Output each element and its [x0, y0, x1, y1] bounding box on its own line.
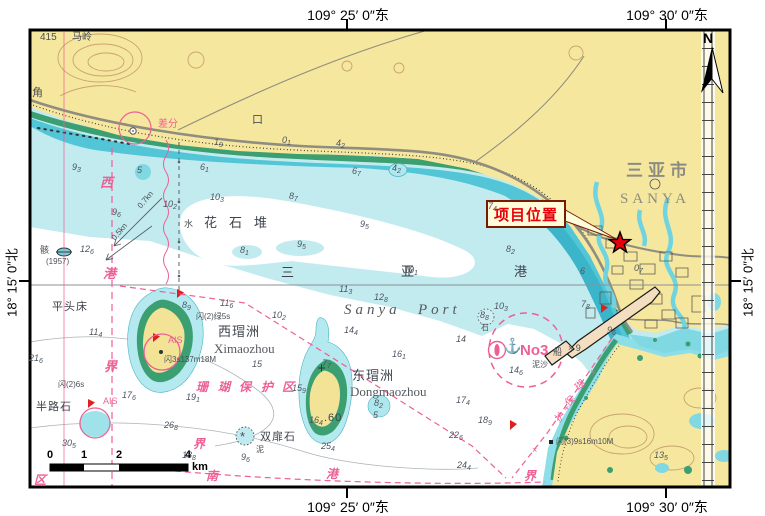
depth-sounding: 188 — [182, 451, 196, 462]
depth-sounding: 82 — [506, 245, 515, 256]
map-label: 石 — [481, 324, 489, 332]
map-label: AIS — [103, 397, 118, 406]
map-label: 西 — [100, 176, 113, 189]
map-label: 船 — [553, 348, 562, 357]
border-ruler — [701, 30, 715, 487]
map-label: .60 — [324, 413, 342, 424]
depth-sounding: 102 — [272, 311, 286, 322]
map-label: SANYA — [620, 192, 690, 207]
depth-sounding: 144 — [344, 326, 358, 337]
map-label: 西瑁洲 — [218, 325, 260, 338]
depth-sounding: 81 — [240, 246, 249, 257]
depth-sounding: 87 — [289, 192, 298, 203]
depth-sounding: 42 — [336, 139, 345, 150]
map-label: 界 — [104, 360, 117, 373]
depth-sounding: 88 — [480, 311, 489, 322]
depth-sounding: 14 — [456, 335, 466, 344]
lon-label-top-left: 109° 25′ 0″东 — [307, 5, 389, 25]
depth-sounding: 96 — [241, 453, 250, 464]
depth-sounding: 95 — [297, 240, 306, 251]
map-label: * — [240, 430, 245, 443]
chart-graphics — [0, 0, 765, 516]
depth-sounding: 116 — [220, 299, 233, 310]
depth-sounding: 5 — [137, 166, 142, 175]
depth-sounding: 216 — [29, 354, 43, 365]
map-label: 保 — [239, 381, 251, 393]
depth-sounding: 82 — [374, 399, 383, 410]
map-label: 区 — [34, 474, 46, 486]
depth-sounding: 15 — [252, 360, 262, 369]
map-label: 闪(2)6s — [58, 381, 84, 389]
map-label: 三 — [281, 266, 295, 279]
map-label: 半路石 — [36, 402, 72, 413]
depth-sounding: 244 — [457, 461, 471, 472]
map-label: 闪3s137m18M — [164, 356, 216, 364]
depth-sounding: 114 — [89, 328, 102, 339]
map-label: N — [703, 31, 713, 45]
scale-tick-2: 2 — [116, 449, 122, 461]
depth-sounding: 42 — [392, 164, 401, 175]
depth-sounding: 226 — [449, 431, 463, 442]
map-label: 珊 — [196, 381, 208, 393]
depth-sounding: 07 — [634, 264, 643, 275]
depth-sounding: 74 — [488, 202, 497, 213]
map-label: 闪(3)9s16m10M — [556, 438, 613, 446]
map-label: 南 — [206, 470, 218, 482]
depth-sounding: 19 — [214, 138, 223, 149]
project-location-callout: 项目位置 — [486, 200, 566, 228]
lon-label-bottom-left: 109° 25′ 0″东 — [307, 497, 389, 516]
depth-sounding: 103 — [494, 302, 508, 313]
depth-sounding: 5 — [373, 411, 378, 420]
depth-sounding: 126 — [80, 245, 94, 256]
map-label: Sanya — [344, 303, 401, 318]
map-label: 415 — [40, 33, 57, 43]
map-label: 护 — [261, 381, 273, 393]
map-label: AIS — [168, 336, 183, 345]
map-label: 泥沙 — [532, 361, 548, 369]
map-label: 港 — [103, 267, 116, 280]
depth-sounding: 102 — [163, 200, 177, 211]
map-label: × — [564, 404, 569, 413]
depth-sounding: 95 — [360, 220, 369, 231]
depth-sounding: 61 — [200, 163, 209, 174]
lon-label-bottom-right: 109° 30′ 0″东 — [626, 497, 708, 516]
scale-tick-1: 1 — [81, 449, 87, 461]
depth-sounding: 6 — [580, 267, 585, 276]
lon-label-top-right: 109° 30′ 0″东 — [626, 5, 708, 25]
map-label: Ximaozhou — [214, 342, 275, 355]
map-label: 三亚市 — [626, 162, 692, 179]
depth-sounding: 305 — [62, 439, 76, 450]
depth-sounding: 101 — [404, 266, 418, 277]
map-label: 闪(2)绿5s — [196, 313, 230, 321]
map-label: 花石堆 — [204, 216, 279, 229]
depth-sounding: 89 — [182, 301, 191, 312]
map-label: 泥 — [256, 446, 264, 454]
map-label: 骸 — [40, 246, 49, 255]
depth-sounding: 01 — [282, 136, 291, 147]
depth-sounding: 93 — [72, 163, 81, 174]
depth-sounding: 113 — [339, 285, 352, 296]
map-label: 界 — [524, 470, 536, 482]
depth-sounding: 67 — [352, 167, 361, 178]
depth-sounding: 254 — [321, 442, 335, 453]
depth-sounding: 135 — [654, 451, 668, 462]
map-label: × — [590, 368, 595, 377]
map-label: 港 — [514, 265, 528, 278]
scale-bar — [50, 464, 188, 471]
depth-sounding: 96 — [112, 208, 121, 219]
depth-sounding: 176 — [122, 391, 136, 402]
depth-sounding: 189 — [478, 416, 492, 427]
map-label: 角 — [32, 88, 43, 99]
depth-sounding: 146 — [509, 366, 523, 377]
map-label: ⚓ — [503, 339, 522, 354]
depth-sounding: 164 — [309, 416, 323, 427]
scale-tick-0: 0 — [47, 449, 53, 461]
depth-sounding: 77 — [322, 359, 331, 370]
depth-sounding: 174 — [456, 396, 470, 407]
map-label: 平头床 — [52, 302, 88, 313]
lat-label-left: 18° 15′ 0″北 — [2, 228, 21, 338]
map-label: No3 — [520, 343, 548, 358]
map-label: 马岭 — [72, 33, 92, 43]
depth-sounding: 103 — [210, 193, 224, 204]
nautical-chart: 109° 25′ 0″东 109° 30′ 0″东 109° 25′ 0″东 1… — [0, 0, 765, 516]
depth-sounding: 96 — [607, 326, 616, 337]
map-label: 港 — [326, 468, 338, 480]
map-label: × — [532, 446, 537, 455]
map-label: 口 — [252, 115, 263, 126]
depth-sounding: 161 — [392, 350, 406, 361]
map-label: 界 — [193, 438, 205, 450]
depth-sounding: 268 — [164, 421, 178, 432]
map-label: 水 — [184, 220, 193, 229]
map-label: Port — [418, 303, 461, 318]
map-label: × 9 — [568, 344, 581, 353]
map-label: (1957) — [46, 258, 69, 266]
depth-sounding: 191 — [186, 393, 200, 404]
map-label: 瑚 — [218, 381, 230, 393]
lat-label-right: 18° 15′ 0″北 — [738, 228, 757, 338]
depth-sounding: 78 — [581, 300, 590, 311]
map-label: Dongmaozhou — [350, 385, 427, 398]
map-label: 差分 — [158, 120, 178, 130]
map-label: 双扉石 — [260, 432, 296, 443]
map-label: 东瑁洲 — [352, 369, 394, 382]
depth-sounding: 128 — [374, 293, 388, 304]
depth-sounding: 159 — [292, 384, 306, 395]
